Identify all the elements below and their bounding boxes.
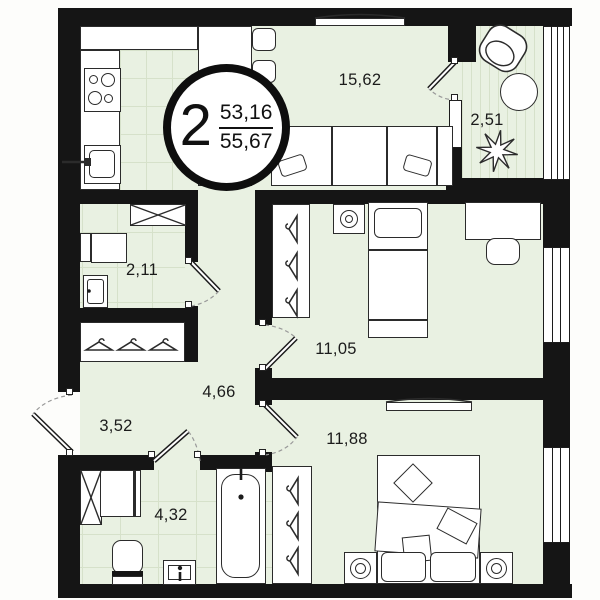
glazing-line [551, 27, 552, 179]
wall-bottom [58, 584, 572, 598]
living-area-value: 53,16 [219, 100, 274, 128]
wall-right-c [543, 543, 570, 598]
stove [84, 68, 121, 112]
balcony-table [500, 73, 538, 111]
label-living-area: 15,62 [325, 71, 395, 90]
sink-basin [89, 150, 115, 178]
chair [252, 28, 276, 51]
label-balcony-area: 2,51 [462, 111, 512, 130]
washer-door-band [133, 471, 136, 516]
wall-left-lower [58, 455, 80, 598]
door-jamb [259, 364, 266, 371]
washing-machine-bath [100, 470, 141, 517]
lamp-inner [491, 563, 502, 574]
window-line [560, 448, 561, 542]
sofa-seat-divider [331, 127, 333, 185]
toilet-tank [112, 576, 143, 585]
door-jamb [194, 451, 201, 458]
sofa-seat-divider [386, 127, 388, 185]
wall-bedroom1-left [255, 197, 272, 325]
washing-machine-front [83, 275, 108, 308]
total-area-value: 55,67 [219, 129, 274, 155]
door-jamb [259, 319, 266, 326]
bedroom1-window [543, 247, 570, 343]
label-hall-area: 3,52 [86, 417, 146, 436]
glazing-line [557, 27, 558, 179]
washing-machine-top [91, 233, 127, 263]
kitchen-sink [84, 145, 121, 184]
laundry-shelf [80, 233, 91, 262]
washer-door [87, 279, 104, 304]
door-jamb [451, 94, 458, 101]
kitchen-counter-top [80, 26, 198, 50]
burner-small [104, 94, 113, 103]
door-jamb [66, 449, 73, 456]
desk-chair [486, 238, 520, 265]
wall-laundry-bottom [58, 308, 198, 322]
sink-basin [168, 565, 191, 580]
label-laundry-area: 2,11 [112, 261, 172, 280]
label-bathroom-area: 4,32 [141, 506, 201, 525]
door-jamb [451, 57, 458, 64]
door-jamb [66, 388, 73, 395]
wall-balcony-bottom [446, 178, 570, 192]
hall-closet [80, 322, 185, 362]
door-jamb [185, 257, 192, 264]
window-line [552, 448, 553, 542]
wall-laundry-right-upper [185, 204, 198, 262]
burner-large [101, 73, 115, 87]
entrance-door [33, 395, 72, 452]
floor-plan: 15,62 2,51 2,11 11,05 4,66 3,52 11,88 4,… [0, 0, 600, 600]
bath-sink [163, 560, 196, 585]
door-jamb [185, 301, 192, 308]
toilet-bowl [112, 540, 143, 574]
tv-console-living [315, 18, 405, 26]
label-bedroom2-area: 11,88 [317, 430, 377, 449]
wall-bathroom-top-left [58, 455, 154, 470]
burner-small [89, 75, 98, 84]
window-line [552, 248, 553, 342]
burner-large [88, 91, 102, 105]
blanket-line [369, 249, 427, 251]
wardrobe-bedroom2 [272, 466, 312, 584]
tv-console-bedroom2 [386, 402, 472, 411]
laundry-cabinet-x [130, 204, 186, 226]
glazing-line [563, 27, 564, 179]
wall-kitchen-bottom [58, 190, 198, 204]
label-hallway-area: 4,66 [189, 383, 249, 402]
wardrobe-bedroom1 [272, 204, 310, 318]
apartment-badge: 2 53,16 55,67 [163, 64, 290, 191]
lamp-inner [345, 215, 353, 223]
pillow [374, 208, 422, 238]
bathtub [216, 468, 266, 584]
door-jamb [259, 449, 266, 456]
balcony-glazing [543, 26, 570, 180]
label-bedroom1-area: 11,05 [306, 340, 366, 359]
pillow [381, 552, 426, 582]
room-count: 2 [180, 97, 212, 155]
bedroom2-window [543, 447, 570, 543]
window-line [560, 248, 561, 342]
blanket-line [369, 319, 427, 321]
desk [465, 202, 541, 240]
door-jamb [148, 451, 155, 458]
bath-cabinet-x [80, 470, 102, 525]
wall-between-bedrooms [255, 378, 560, 400]
pillow [430, 552, 476, 582]
sofa-armrest-line [436, 127, 438, 185]
bathtub-basin [221, 474, 260, 578]
door-jamb [259, 400, 266, 407]
lamp-inner [355, 563, 366, 574]
area-fraction: 53,16 55,67 [219, 100, 274, 155]
